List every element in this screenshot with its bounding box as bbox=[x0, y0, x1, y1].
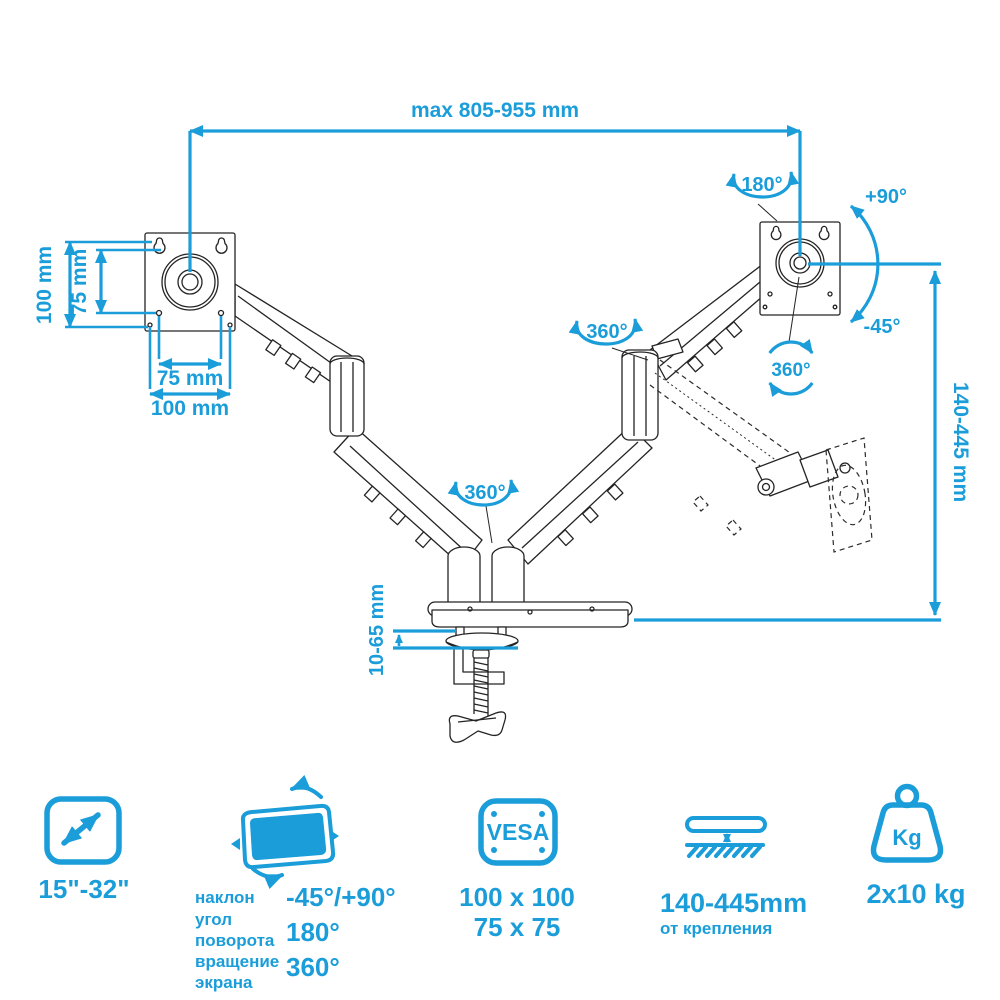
arm-assembly bbox=[235, 264, 763, 627]
dimension-top-width: max 805-955 mm bbox=[190, 99, 800, 272]
desk-clamp bbox=[446, 627, 518, 742]
rotation-plate-label: 360° bbox=[771, 360, 810, 381]
plate-width-outer-label: 100 mm bbox=[151, 397, 229, 420]
height-caption: от крепления bbox=[660, 919, 772, 938]
angle-rotation-plate: 360° bbox=[770, 342, 813, 394]
weight-value: 2x10 kg bbox=[866, 879, 965, 909]
tilt-value-3: 360° bbox=[286, 952, 340, 982]
plate-height-inner-label: 75 mm bbox=[68, 249, 91, 316]
tilt-icon bbox=[231, 787, 339, 877]
angle-tilt-arc: +90° -45° bbox=[851, 186, 907, 338]
height-range-label: 140-445 mm bbox=[949, 382, 972, 502]
legend-weight: Kg 2x10 kg bbox=[866, 787, 965, 910]
tilt-value-2: 180° bbox=[286, 917, 340, 947]
legend-vesa: VESA 100 x 100 75 x 75 bbox=[459, 801, 575, 942]
desk-thickness-label: 10-65 mm bbox=[366, 584, 388, 676]
angle-rotation-base: 360° bbox=[456, 480, 512, 505]
diagram-canvas: max 805-955 mm 100 mm 75 mm 75 mm 100 mm… bbox=[0, 0, 1000, 1000]
top-width-label: max 805-955 mm bbox=[411, 99, 579, 122]
dimension-height-range: 140-445 mm bbox=[634, 264, 972, 620]
tilt-value-1: -45°/+90° bbox=[286, 882, 396, 912]
vesa-value-2: 75 x 75 bbox=[474, 912, 561, 942]
height-value: 140-445mm bbox=[660, 888, 807, 918]
rotation-base-label: 360° bbox=[464, 482, 505, 504]
vesa-value-1: 100 x 100 bbox=[459, 882, 575, 912]
vesa-icon: VESA bbox=[481, 801, 555, 863]
legend-screen-size: 15"-32" bbox=[38, 799, 129, 904]
tilt-down-label: -45° bbox=[864, 316, 901, 338]
rotation-elbow-label: 360° bbox=[586, 321, 627, 343]
screen-size-value: 15"-32" bbox=[38, 874, 129, 904]
tilt-caption-2: угол bbox=[195, 910, 232, 929]
monitor-mount-spec-diagram: max 805-955 mm 100 mm 75 mm 75 mm 100 mm… bbox=[0, 0, 1000, 1000]
legend-height: 140-445mm от крепления bbox=[660, 818, 807, 938]
swivel-label: 180° bbox=[741, 174, 782, 196]
tilt-up-label: +90° bbox=[865, 186, 907, 208]
tilt-caption-3: поворота bbox=[195, 931, 275, 950]
tilt-caption-5: экрана bbox=[195, 973, 253, 992]
tilt-caption-4: вращение bbox=[195, 952, 279, 971]
height-icon bbox=[687, 818, 765, 856]
plate-height-outer-label: 100 mm bbox=[33, 246, 56, 324]
angle-rotation-elbow: 360° bbox=[577, 319, 636, 344]
ghost-arm bbox=[650, 360, 872, 552]
tilt-caption-1: наклон bbox=[195, 888, 255, 907]
weight-icon: Kg bbox=[874, 787, 941, 861]
plate-width-inner-label: 75 mm bbox=[157, 367, 224, 390]
angle-swivel-180: 180° bbox=[734, 172, 792, 197]
vesa-badge: VESA bbox=[487, 819, 550, 845]
weight-badge: Kg bbox=[892, 825, 921, 850]
legend-tilt: наклон угол поворота вращение экрана -45… bbox=[195, 787, 396, 992]
